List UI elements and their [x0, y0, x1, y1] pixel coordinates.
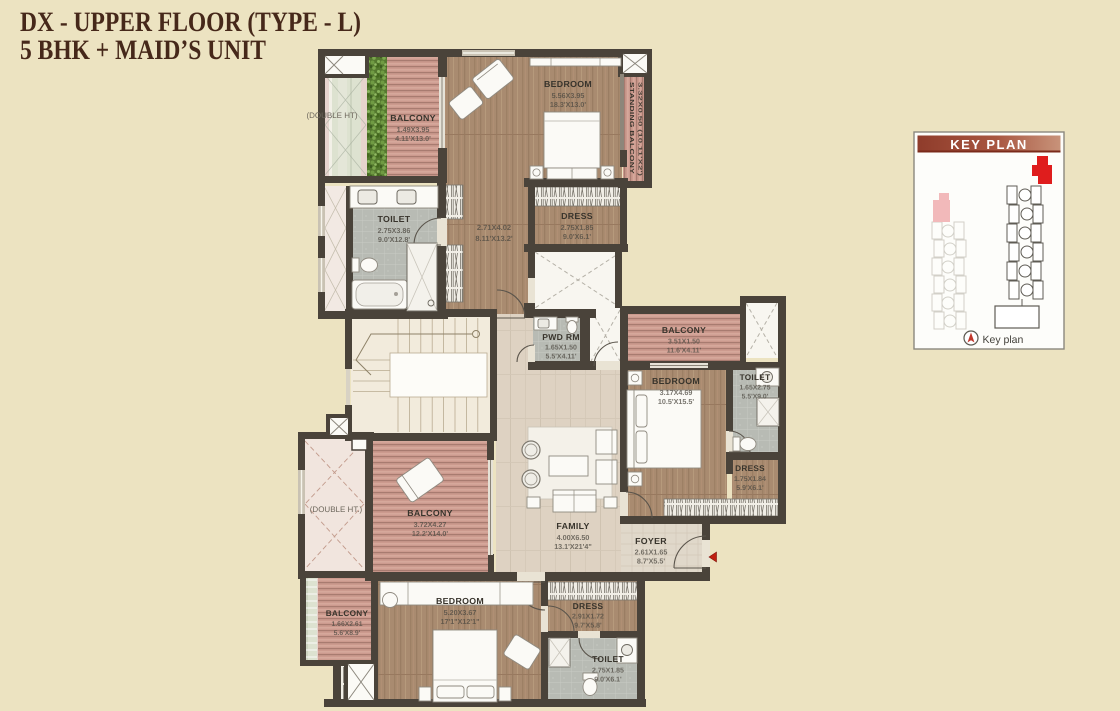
- svg-text:9.0'X12.8': 9.0'X12.8': [378, 235, 410, 244]
- svg-text:FOYER: FOYER: [635, 536, 667, 546]
- svg-text:3.72X4.27: 3.72X4.27: [414, 520, 447, 529]
- svg-text:4.00X6.50: 4.00X6.50: [557, 533, 590, 542]
- svg-text:5.5'X4.11': 5.5'X4.11': [546, 354, 577, 361]
- svg-text:1.65X1.50: 1.65X1.50: [545, 345, 577, 352]
- svg-text:2.61X1.65: 2.61X1.65: [635, 548, 668, 557]
- svg-text:12.2'X14.0': 12.2'X14.0': [412, 529, 448, 538]
- svg-text:FAMILY: FAMILY: [556, 521, 589, 531]
- svg-text:1.66X2.61: 1.66X2.61: [332, 621, 363, 628]
- svg-text:BALCONY: BALCONY: [662, 325, 706, 335]
- svg-text:11.6'X4.11': 11.6'X4.11': [667, 348, 702, 355]
- svg-text:3.32X0.50 (10.11'X2'): 3.32X0.50 (10.11'X2'): [637, 82, 643, 176]
- svg-text:4.11'X13.0': 4.11'X13.0': [395, 134, 431, 143]
- svg-text:9.0'X6.1': 9.0'X6.1': [563, 232, 591, 241]
- svg-text:1.65X2.75: 1.65X2.75: [740, 385, 771, 392]
- svg-text:17'1"X12'1": 17'1"X12'1": [440, 617, 479, 626]
- svg-text:2.75X1.85: 2.75X1.85: [592, 668, 624, 675]
- svg-text:1.49X3.95: 1.49X3.95: [397, 125, 430, 134]
- svg-text:BEDROOM: BEDROOM: [436, 596, 484, 606]
- svg-text:3.51X1.50: 3.51X1.50: [668, 339, 700, 346]
- svg-text:(DOUBLE HT.): (DOUBLE HT.): [310, 505, 363, 514]
- svg-text:5.6'X8.9': 5.6'X8.9': [334, 630, 361, 637]
- svg-text:DX - UPPER FLOOR (TYPE - L): DX - UPPER FLOOR (TYPE - L): [20, 7, 361, 38]
- svg-text:DRESS: DRESS: [573, 601, 604, 611]
- svg-text:2.91X1.72: 2.91X1.72: [572, 614, 604, 621]
- svg-text:(DOUBLE HT): (DOUBLE HT): [306, 111, 357, 120]
- svg-text:Key plan: Key plan: [983, 334, 1024, 346]
- svg-text:KEY PLAN: KEY PLAN: [950, 137, 1028, 152]
- svg-text:STANDING BALCONY: STANDING BALCONY: [628, 82, 635, 174]
- svg-text:PWD RM: PWD RM: [542, 332, 580, 342]
- svg-text:2.75X3.86: 2.75X3.86: [378, 226, 411, 235]
- svg-text:1.75X1.84: 1.75X1.84: [734, 476, 766, 483]
- svg-text:TOILET: TOILET: [378, 214, 411, 224]
- svg-text:18.3'X13.0': 18.3'X13.0': [550, 100, 586, 109]
- svg-text:BALCONY: BALCONY: [390, 113, 436, 123]
- svg-text:2.75X1.85: 2.75X1.85: [561, 223, 594, 232]
- svg-text:5.20X3.67: 5.20X3.67: [444, 608, 477, 617]
- svg-text:DRESS: DRESS: [735, 464, 765, 473]
- svg-text:BALCONY: BALCONY: [326, 609, 369, 618]
- svg-text:8.11'X13.2': 8.11'X13.2': [475, 234, 513, 243]
- svg-text:5.9'X6.1': 5.9'X6.1': [736, 485, 764, 492]
- svg-text:9.0'X6.1': 9.0'X6.1': [594, 677, 622, 684]
- svg-text:9.7'X5.8': 9.7'X5.8': [574, 623, 602, 630]
- svg-text:13.1'X21'4": 13.1'X21'4": [554, 542, 592, 551]
- svg-text:DRESS: DRESS: [561, 211, 593, 221]
- svg-text:BEDROOM: BEDROOM: [652, 376, 700, 386]
- svg-text:5.5'X9.0': 5.5'X9.0': [742, 393, 769, 400]
- svg-text:5.56X3.95: 5.56X3.95: [552, 91, 585, 100]
- svg-text:5 BHK + MAID’S UNIT: 5 BHK + MAID’S UNIT: [20, 35, 266, 66]
- svg-text:2.71X4.02: 2.71X4.02: [477, 223, 511, 232]
- svg-text:BALCONY: BALCONY: [407, 508, 453, 518]
- svg-text:10.5'X15.5': 10.5'X15.5': [658, 397, 694, 406]
- svg-text:BEDROOM: BEDROOM: [544, 79, 592, 89]
- svg-text:3.17X4.69: 3.17X4.69: [660, 388, 693, 397]
- svg-text:TOILET: TOILET: [740, 373, 771, 382]
- svg-text:8.7'X5.5': 8.7'X5.5': [637, 557, 665, 566]
- svg-text:TOILET: TOILET: [592, 654, 624, 664]
